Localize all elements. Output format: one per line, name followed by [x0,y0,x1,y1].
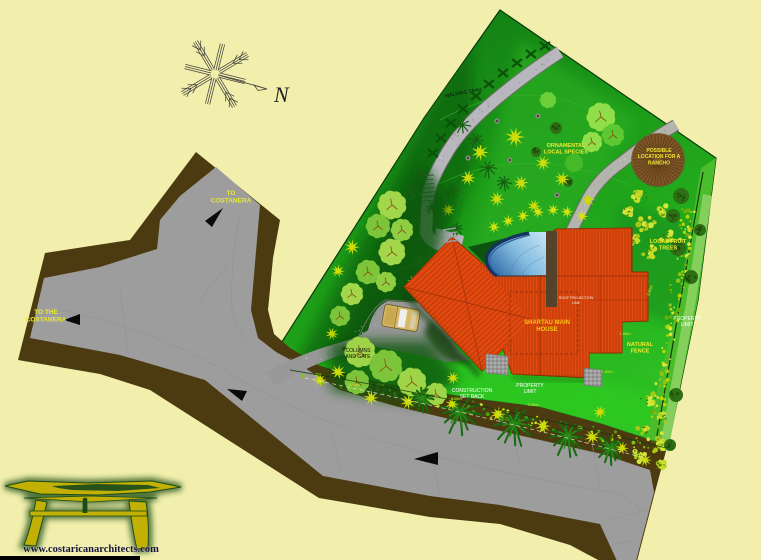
svg-text:N: N [273,82,290,107]
svg-text:3.00m: 3.00m [527,402,539,407]
svg-text:1.50m: 1.50m [619,331,631,336]
svg-text:3.00m: 3.00m [348,382,360,387]
svg-text:ORNAMENTALLOCAL SPECIES: ORNAMENTALLOCAL SPECIES [544,143,589,156]
svg-text:1.50m: 1.50m [450,396,462,401]
svg-text:1.50m: 1.50m [601,369,613,374]
svg-text:COLUMNSAND GATE: COLUMNSAND GATE [345,348,371,360]
svg-text:www.costaricanarchitects.com: www.costaricanarchitects.com [23,544,159,555]
